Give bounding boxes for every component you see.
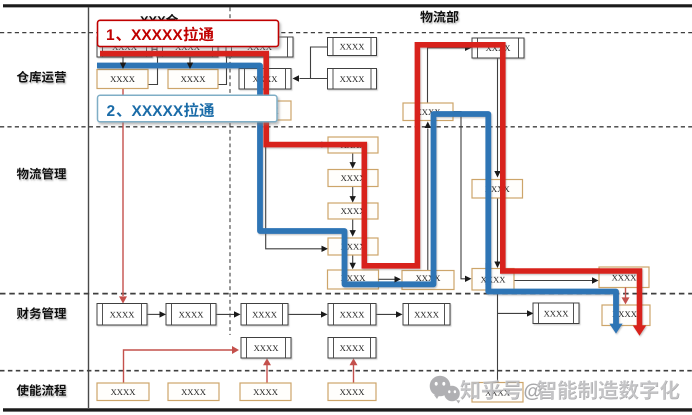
svg-text:XXXX: XXXX [340,387,366,397]
svg-text:XXXX: XXXX [253,387,279,397]
svg-text:1: 1 [106,27,115,44]
svg-text:XXXX: XXXX [544,308,570,318]
svg-text:XXXX: XXXX [179,309,205,319]
svg-text:XXXX: XXXX [340,309,366,319]
svg-text:XXXXX: XXXXX [131,27,183,44]
svg-text:XXXX: XXXX [340,343,366,353]
svg-text:XXXX: XXXX [181,387,207,397]
svg-text:XXXX: XXXX [416,273,442,283]
svg-text:XXXX: XXXX [110,309,136,319]
svg-text:XXXX: XXXX [110,74,136,84]
svg-text:XXXX: XXXX [254,343,280,353]
svg-text:XXXX: XXXX [414,309,440,319]
svg-text:XXXX: XXXX [252,309,278,319]
svg-text:XXXXX: XXXXX [132,103,184,120]
svg-text:XXXX: XXXX [481,274,507,284]
svg-text:XXXX: XXXX [340,74,366,84]
svg-text:2: 2 [107,103,116,120]
svg-text:XXXX: XXXX [181,74,207,84]
svg-text:XXXX: XXXX [340,42,366,52]
svg-text:XXXX: XXXX [111,387,137,397]
